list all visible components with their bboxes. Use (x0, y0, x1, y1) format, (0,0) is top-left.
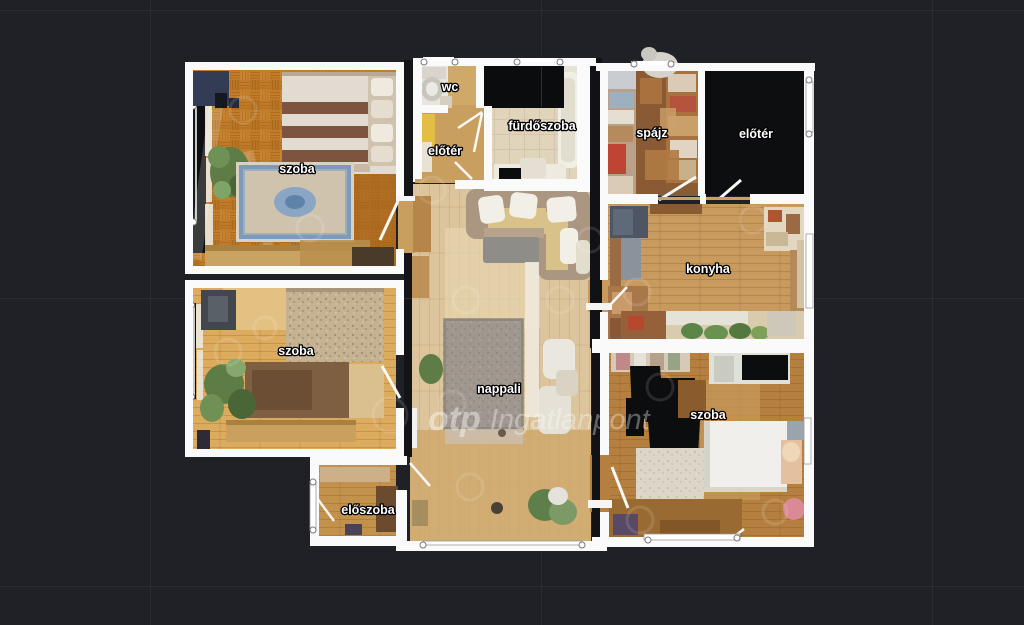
svg-text:spájz: spájz (636, 126, 667, 140)
svg-text:konyha: konyha (686, 262, 731, 276)
svg-text:előszoba: előszoba (341, 503, 396, 517)
svg-text:Ingatlanpont: Ingatlanpont (490, 404, 652, 436)
svg-text:szoba: szoba (690, 408, 726, 422)
svg-text:wc: wc (441, 80, 459, 94)
svg-text:fürdőszoba: fürdőszoba (508, 119, 576, 133)
svg-text:szoba: szoba (279, 162, 315, 176)
svg-text:előtér: előtér (428, 144, 462, 158)
svg-text:előtér: előtér (739, 127, 773, 141)
svg-text:otp: otp (428, 400, 481, 438)
svg-text:nappali: nappali (477, 382, 521, 396)
svg-text:szoba: szoba (278, 344, 314, 358)
